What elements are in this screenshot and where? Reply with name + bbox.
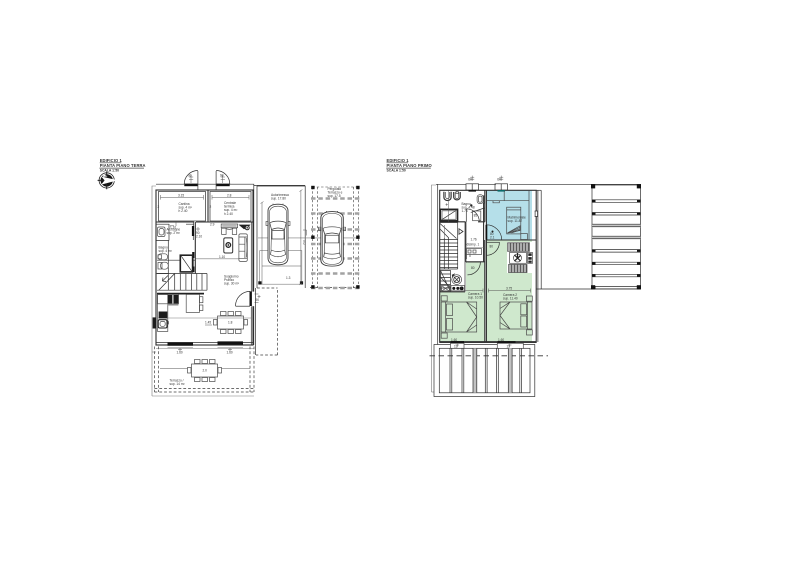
svg-text:90: 90 <box>256 298 260 302</box>
svg-text:sup. 4 m²: sup. 4 m² <box>159 249 172 253</box>
svg-text:90: 90 <box>220 174 224 178</box>
svg-text:sup. 10.50: sup. 10.50 <box>468 296 483 300</box>
svg-text:sup. 11.40: sup. 11.40 <box>503 297 518 301</box>
svg-text:1.60: 1.60 <box>498 338 504 342</box>
svg-text:80: 80 <box>471 266 475 270</box>
svg-text:2.0: 2.0 <box>203 369 208 373</box>
svg-text:3.75: 3.75 <box>506 287 512 291</box>
svg-text:2.10: 2.10 <box>196 234 202 238</box>
svg-text:sup. 17.5: sup. 17.5 <box>328 194 341 198</box>
svg-text:2.9: 2.9 <box>210 223 215 227</box>
svg-text:85: 85 <box>474 214 478 218</box>
svg-text:SCALA 1:50: SCALA 1:50 <box>100 168 119 172</box>
svg-text:1.60: 1.60 <box>451 338 457 342</box>
svg-text:sup. 11.87: sup. 11.87 <box>508 219 523 223</box>
svg-text:12: 12 <box>507 344 511 348</box>
svg-text:5.0: 5.0 <box>302 240 306 245</box>
svg-text:1.10: 1.10 <box>219 255 225 259</box>
svg-text:1.45: 1.45 <box>205 321 211 325</box>
svg-text:1.60: 1.60 <box>227 351 233 355</box>
svg-text:PIANTA PIANO TERRA: PIANTA PIANO TERRA <box>100 163 146 168</box>
svg-text:SCALA 1:50: SCALA 1:50 <box>387 168 406 172</box>
svg-text:90: 90 <box>188 174 192 178</box>
svg-text:12: 12 <box>454 344 458 348</box>
svg-text:60: 60 <box>497 177 501 181</box>
svg-text:80: 80 <box>490 245 494 249</box>
svg-text:sup. 30 m²: sup. 30 m² <box>224 282 239 286</box>
svg-text:PIANTA PIANO PRIMO: PIANTA PIANO PRIMO <box>387 163 433 168</box>
svg-text:sup. 14 m²: sup. 14 m² <box>170 382 185 386</box>
svg-text:sup. 17.80: sup. 17.80 <box>271 197 286 201</box>
svg-text:2.8: 2.8 <box>227 193 232 197</box>
svg-text:disimp. 1: disimp. 1 <box>467 243 480 247</box>
svg-text:3.15: 3.15 <box>178 193 184 197</box>
svg-text:2.1: 2.1 <box>490 235 495 239</box>
svg-text:60: 60 <box>468 177 472 181</box>
svg-text:2: 2 <box>158 205 160 209</box>
svg-text:1.60: 1.60 <box>177 351 183 355</box>
svg-text:2: 2 <box>210 205 212 209</box>
svg-text:3.4: 3.4 <box>458 287 463 291</box>
svg-text:h 2.40: h 2.40 <box>179 209 188 213</box>
svg-text:1.76: 1.76 <box>462 209 468 213</box>
svg-text:1.8: 1.8 <box>228 321 233 325</box>
svg-text:h 2.40: h 2.40 <box>224 212 233 216</box>
svg-text:1.76: 1.76 <box>471 238 477 242</box>
svg-text:sup. 2 m²: sup. 2 m² <box>167 231 180 235</box>
svg-text:1.3: 1.3 <box>286 276 291 280</box>
